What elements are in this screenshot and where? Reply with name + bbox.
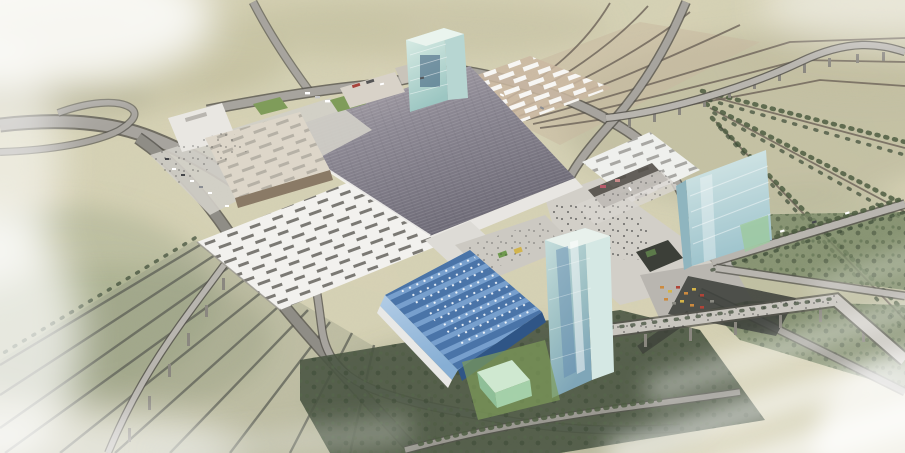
south-glass-tower <box>545 228 614 398</box>
east-terminal-accent-a <box>600 185 606 188</box>
east-terminal-accent-b <box>615 179 620 182</box>
station-aerial-rendering <box>0 0 905 453</box>
rendering-canvas <box>0 0 905 453</box>
